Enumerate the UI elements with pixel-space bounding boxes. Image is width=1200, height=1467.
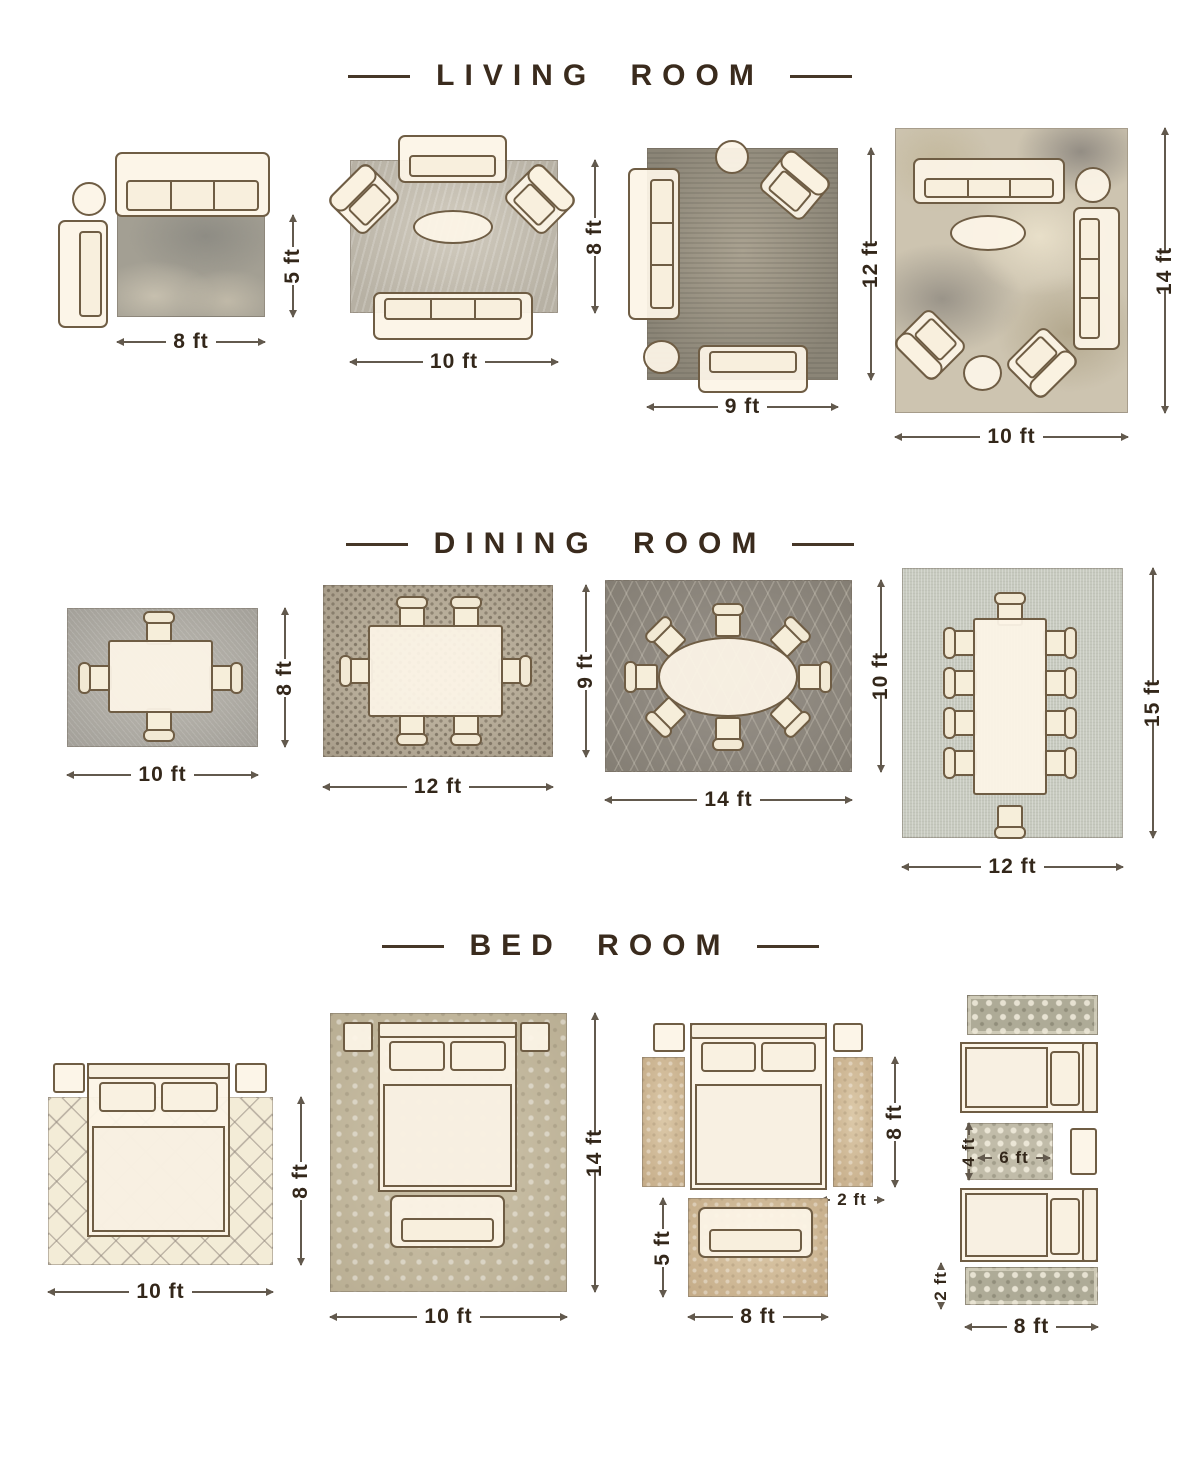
title-dash <box>348 75 410 78</box>
bench-cushion <box>401 1218 494 1242</box>
dimension-label: 12 ft <box>414 775 462 799</box>
pillow <box>1050 1198 1080 1255</box>
nightstand <box>53 1063 85 1093</box>
title-dash <box>757 945 819 948</box>
section-title-text: LIVING ROOM <box>436 59 764 93</box>
height-dimension: 8 ft <box>288 1097 314 1265</box>
dining-table-oval <box>658 637 798 717</box>
pillow <box>450 1041 505 1071</box>
nightstand <box>653 1023 685 1052</box>
dining-chair <box>943 707 977 739</box>
dining-table <box>108 640 213 713</box>
width-dimension: 10 ft <box>350 350 558 374</box>
width-dimension: 10 ft <box>67 763 258 787</box>
loveseat-cushion <box>709 1229 802 1252</box>
blanket <box>695 1084 822 1185</box>
dining-chair <box>78 662 112 694</box>
width-dimension: 10 ft <box>48 1280 273 1304</box>
rug-width-dimension: 6 ft <box>978 1148 1050 1168</box>
blanket <box>92 1126 225 1232</box>
headboard <box>690 1023 827 1039</box>
dining-chair <box>143 708 175 742</box>
loveseat <box>698 345 808 393</box>
living-layout-10x8: 8 ft 10 ft <box>330 120 615 385</box>
dining-chair <box>396 712 428 746</box>
loveseat-cushion <box>709 351 797 373</box>
width-dimension: 8 ft <box>117 330 265 354</box>
section-title-text: DINING ROOM <box>434 527 767 561</box>
dining-chair <box>1043 747 1077 779</box>
dining-chair <box>624 661 658 693</box>
bed <box>690 1023 827 1190</box>
height-dimension: 15 ft <box>1140 568 1166 838</box>
dining-chair <box>798 661 832 693</box>
runner-width-dimension: 2 ft <box>820 1190 884 1210</box>
nightstand <box>1070 1128 1097 1175</box>
height-dimension: 8 ft <box>582 160 608 313</box>
loveseat <box>398 135 507 183</box>
pillow <box>99 1082 156 1112</box>
sofa <box>115 152 270 217</box>
width-dimension: 12 ft <box>902 855 1123 879</box>
runner-rug <box>833 1057 873 1187</box>
twin-bed <box>960 1042 1098 1113</box>
dimension-label: 14 ft <box>704 788 752 812</box>
chaise-cushion <box>79 231 102 317</box>
width-dimension: 10 ft <box>895 425 1128 449</box>
dimension-label: 8 ft <box>289 1163 313 1199</box>
coffee-table <box>950 215 1026 251</box>
sofa <box>373 292 533 340</box>
dimension-label: 2 ft <box>931 1271 951 1301</box>
sofa-cushions <box>384 298 522 320</box>
title-dash <box>792 543 854 546</box>
side-table <box>72 182 106 216</box>
dimension-label: 8 ft <box>583 219 607 255</box>
dimension-label: 12 ft <box>988 855 1036 879</box>
dining-chair <box>943 667 977 699</box>
bedroom-layout-twin-runners: 4 ft 6 ft 2 ft 8 ft <box>920 980 1200 1335</box>
blanket <box>965 1193 1048 1257</box>
pillow <box>701 1042 756 1072</box>
dining-chair <box>450 712 482 746</box>
section-title-text: BED ROOM <box>470 929 731 963</box>
bed <box>87 1063 230 1237</box>
runner-rug <box>965 1267 1098 1305</box>
dining-chair <box>1043 627 1077 659</box>
runner-height-dimension: 8 ft <box>882 1057 908 1187</box>
loveseat-cushion <box>409 155 496 177</box>
dining-chair <box>1043 707 1077 739</box>
width-dimension: 10 ft <box>330 1305 567 1329</box>
side-table <box>715 140 749 174</box>
section-title-living-room: LIVING ROOM <box>0 58 1200 94</box>
living-layout-8x5: 5 ft 8 ft <box>40 130 310 365</box>
dining-table <box>368 625 503 717</box>
dimension-label: 10 ft <box>136 1280 184 1304</box>
width-dimension: 12 ft <box>323 775 553 799</box>
twin-bed <box>960 1188 1098 1262</box>
pillow <box>389 1041 444 1071</box>
bed <box>378 1022 517 1192</box>
living-layout-9x12: 12 ft 9 ft <box>610 130 890 430</box>
headboard <box>1082 1042 1098 1113</box>
height-dimension: 14 ft <box>582 1013 608 1292</box>
dimension-label: 15 ft <box>1141 679 1165 727</box>
headboard <box>1082 1188 1098 1262</box>
width-dimension: 9 ft <box>647 395 838 419</box>
dining-layout-12x9: 9 ft 12 ft <box>310 570 600 805</box>
dining-layout-12x15: 15 ft 12 ft <box>890 560 1180 890</box>
dining-layout-10x8: 8 ft 10 ft <box>40 580 310 800</box>
runner-height-dimension: 2 ft <box>928 1263 954 1309</box>
section-title-bed-room: BED ROOM <box>0 928 1200 964</box>
dimension-label: 8 ft <box>1014 1315 1050 1339</box>
headboard <box>378 1022 517 1038</box>
ottoman <box>643 340 680 374</box>
chaise <box>58 220 108 328</box>
headboard <box>87 1063 230 1079</box>
title-dash <box>790 75 852 78</box>
nightstand <box>235 1063 267 1093</box>
ottoman <box>963 355 1002 391</box>
dining-chair <box>712 717 744 751</box>
pillow <box>761 1042 816 1072</box>
sofa-cushions <box>924 178 1054 198</box>
loveseat <box>698 1207 813 1258</box>
bedroom-layout-10x14: 14 ft 10 ft <box>320 1000 610 1330</box>
bedroom-layout-10x8: 8 ft 10 ft <box>20 1030 320 1322</box>
runner-rug <box>642 1057 685 1187</box>
dimension-label: 5 ft <box>281 248 305 284</box>
dining-chair <box>1043 667 1077 699</box>
dimension-label: 8 ft <box>740 1305 776 1329</box>
coffee-table <box>413 210 493 244</box>
dimension-label: 9 ft <box>725 395 761 419</box>
height-dimension: 5 ft <box>280 215 306 317</box>
bedroom-layout-runners: 8 ft 2 ft 5 ft 8 ft <box>620 1010 910 1335</box>
height-dimension: 8 ft <box>272 608 298 747</box>
dining-chair <box>994 805 1026 839</box>
dimension-label: 10 ft <box>138 763 186 787</box>
dimension-label: 10 ft <box>987 425 1035 449</box>
dimension-label: 14 ft <box>583 1128 607 1176</box>
pillow <box>161 1082 218 1112</box>
dining-chair <box>943 747 977 779</box>
dimension-label: 8 ft <box>173 330 209 354</box>
dimension-label: 2 ft <box>837 1190 867 1210</box>
dining-layout-14x10: 10 ft 14 ft <box>590 570 900 815</box>
nightstand <box>520 1022 550 1052</box>
title-dash <box>382 945 444 948</box>
nightstand <box>343 1022 373 1052</box>
dining-chair <box>498 655 532 687</box>
nightstand <box>833 1023 863 1052</box>
pillow <box>1050 1051 1080 1106</box>
dimension-label: 4 ft <box>959 1137 979 1167</box>
dimension-label: 10 ft <box>424 1305 472 1329</box>
dining-chair <box>943 627 977 659</box>
dimension-label: 8 ft <box>273 660 297 696</box>
title-dash <box>346 543 408 546</box>
width-dimension: 8 ft <box>965 1315 1098 1339</box>
sofa <box>628 168 680 320</box>
section-title-dining-room: DINING ROOM <box>0 526 1200 562</box>
sofa-cushions <box>650 179 674 309</box>
rug-height-dimension: 5 ft <box>650 1198 676 1297</box>
dimension-label: 5 ft <box>651 1230 675 1266</box>
sofa-cushions <box>1079 218 1100 339</box>
dimension-label: 10 ft <box>430 350 478 374</box>
rug <box>117 215 265 317</box>
sofa <box>913 158 1065 204</box>
bench <box>390 1195 505 1248</box>
rug-size-guide: LIVING ROOM 5 ft 8 ft 8 ft 10 ft 12 ft 9… <box>0 0 1200 1467</box>
width-dimension: 8 ft <box>688 1305 828 1329</box>
side-table <box>1075 167 1111 203</box>
living-layout-10x14: 14 ft 10 ft <box>880 110 1200 455</box>
dining-chair <box>209 662 243 694</box>
sofa <box>1073 207 1120 350</box>
dining-table <box>973 618 1047 795</box>
blanket <box>383 1084 512 1187</box>
runner-rug <box>967 995 1098 1035</box>
dimension-label: 14 ft <box>1153 246 1177 294</box>
dimension-label: 8 ft <box>883 1104 907 1140</box>
sofa-cushions <box>126 180 259 211</box>
blanket <box>965 1047 1048 1108</box>
dining-chair <box>712 603 744 637</box>
width-dimension: 14 ft <box>605 788 852 812</box>
height-dimension: 14 ft <box>1152 128 1178 413</box>
dimension-label: 6 ft <box>999 1148 1029 1168</box>
